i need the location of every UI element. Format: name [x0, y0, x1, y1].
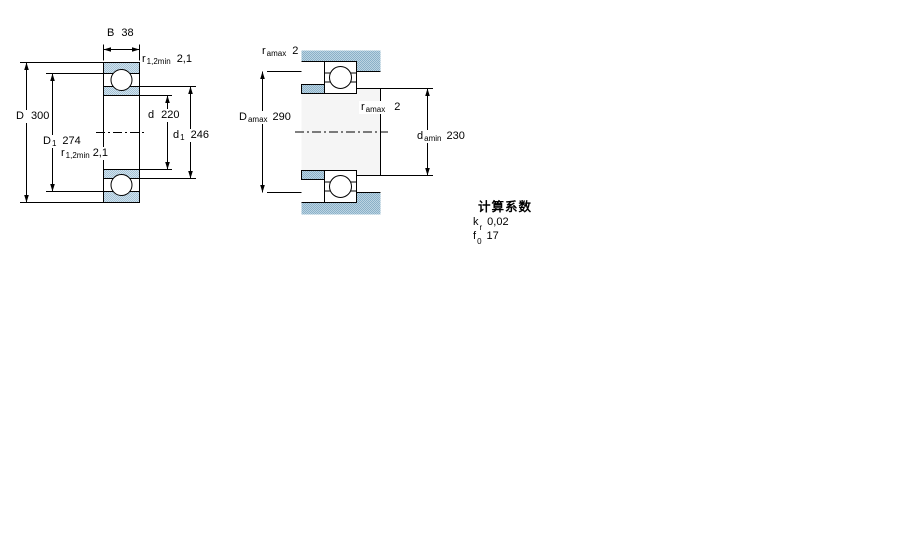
- dimension-d: [140, 96, 173, 170]
- dim-label-bore-diameter-d: d220: [146, 109, 181, 122]
- factor-kr: kr0,02: [473, 216, 509, 230]
- dim-label-width-B: B38: [107, 27, 134, 40]
- bearing-section-bottom: [325, 171, 357, 203]
- dimension-D1: [46, 74, 104, 192]
- calculation-factors-heading: 计算系数: [478, 196, 532, 215]
- dim-label-housing-Damax: Damax290: [237, 111, 293, 124]
- dim-label-fillet-top: ramax2: [262, 45, 298, 58]
- dim-label-fillet-mid: ramax2: [359, 101, 402, 114]
- technical-drawing-canvas: [0, 0, 900, 560]
- dim-label-shaft-damin: damin230: [415, 130, 467, 143]
- ball-bottom: [111, 175, 132, 196]
- dimension-D: [20, 63, 104, 203]
- dim-label-outside-diameter-D: D300: [14, 110, 51, 123]
- dim-label-chamfer-bottom: r1,2min2,1: [59, 147, 110, 160]
- dim-label-shoulder-d1: d1246: [171, 129, 211, 142]
- ball-top: [111, 70, 132, 91]
- dimension-B: [104, 45, 140, 61]
- factor-f0: f017: [473, 230, 499, 244]
- bearing-section-top: [325, 62, 357, 94]
- ball-top: [330, 67, 352, 89]
- bearing-cross-section-figure: [20, 45, 196, 203]
- shaft-shoulder-bottom: [302, 171, 325, 180]
- abutment-figure: [260, 51, 433, 215]
- dim-label-chamfer-top: r1,2min2,1: [142, 53, 192, 66]
- ball-bottom: [330, 176, 352, 198]
- shaft-shoulder-top: [302, 85, 325, 94]
- catalog-figure-page: B38 r1,2min2,1 D300 D1274 r1,2min2,1 d22…: [0, 0, 900, 560]
